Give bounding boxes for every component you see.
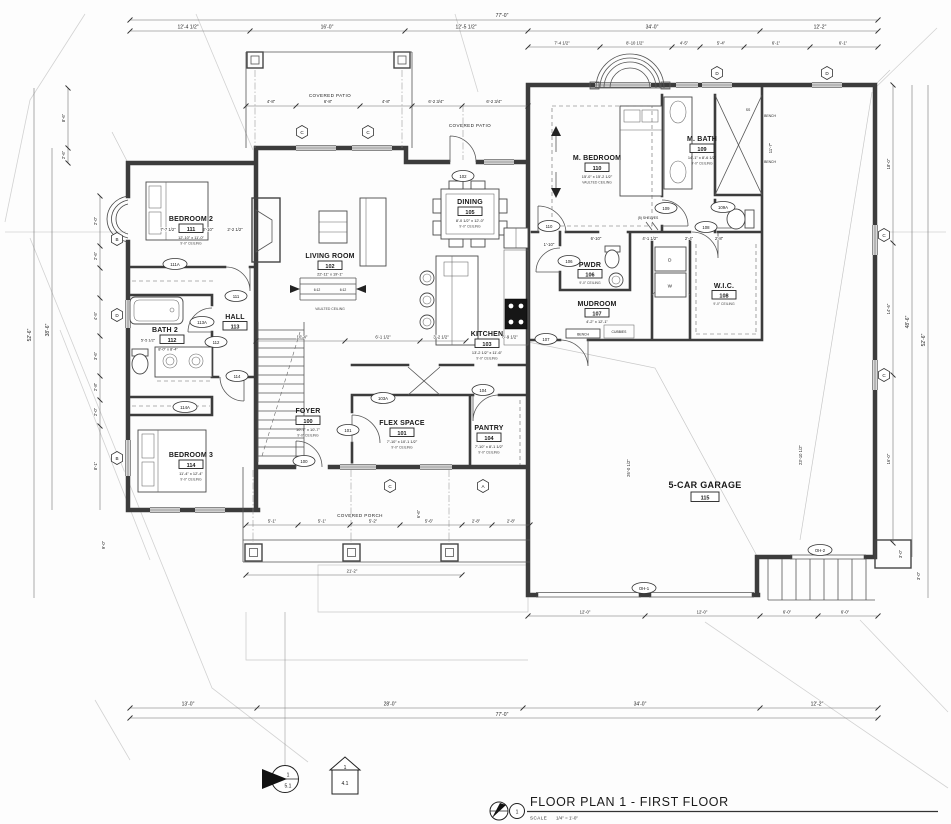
room-size: 12'-10" x 11'-0" <box>178 235 204 240</box>
room-number: 101 <box>397 431 406 437</box>
dim-top: 16'-0" <box>321 25 334 31</box>
room-ceiling: 9'-0" CEILING <box>478 451 500 455</box>
room-foyer: FOYER 100 10'-7" x 10'-7" 9'-0" CEILING <box>295 408 320 438</box>
dim-interior: 2'-4" <box>685 236 694 241</box>
dim-interior: 1'-10" <box>544 242 555 247</box>
dim-interior: 3'-2 1/2" <box>433 335 449 340</box>
dim-porch: 5'-1" <box>268 519 277 524</box>
dim-right: 14'-6" <box>886 303 891 314</box>
dim-porch: 5'-6" <box>425 519 434 524</box>
svg-text:OH-1: OH-1 <box>639 586 650 591</box>
window-tag: D <box>111 309 122 322</box>
dim-top: 7'-4 1/2" <box>554 41 570 46</box>
room-name: LIVING ROOM <box>305 253 354 260</box>
door-tag: 108 <box>695 222 717 233</box>
door-tag: 103A <box>371 393 395 404</box>
room-ceiling: VAULTED CEILING <box>582 181 612 185</box>
section-number: 1 <box>287 773 290 779</box>
dim-top: 12'-5 1/2" <box>455 25 476 31</box>
door-tag: 111 <box>225 291 247 302</box>
dim-patio: 4'-8" <box>382 99 391 104</box>
door-tag: OH-2 <box>808 545 832 556</box>
door-tag: 101 <box>337 425 359 436</box>
dim-overall-top: 77'-0" <box>496 13 509 19</box>
room-number: 100 <box>303 419 312 425</box>
svg-text:108: 108 <box>702 225 710 230</box>
room-name: DINING <box>457 199 483 206</box>
floor-plan-sheet: 77'-0" 12'-4 1/2" 16'-0" 12'-5 1/2" 34'-… <box>0 0 951 824</box>
door-tag: 112 <box>205 337 227 348</box>
room-number: 114 <box>187 463 197 469</box>
door-tag: OH-1 <box>632 583 656 594</box>
room-name: FOYER <box>295 408 320 415</box>
room-flex-space: FLEX SPACE 101 7'-10" x 10'-1 1/2" 9'-0"… <box>379 420 425 450</box>
dim-bottom: 34'-0" <box>634 702 647 708</box>
svg-text:112: 112 <box>213 340 220 345</box>
dim-right: 3'-0" <box>898 549 903 558</box>
elevation-sheet: 4.1 <box>342 781 349 787</box>
cubbies-label: CUBBIES <box>612 330 628 334</box>
dim-overall-bottom: 77'-0" <box>496 712 509 718</box>
door-tag: 100 <box>293 456 315 467</box>
dim-garage: 26'-0 1/2" <box>626 459 631 477</box>
dim-top: 4'-5" <box>680 41 689 46</box>
dim-bottom: 12'-2" <box>811 702 824 708</box>
door-tag: 114A <box>173 402 197 413</box>
room-number: 108 <box>719 293 728 299</box>
room-living: LIVING ROOM 102 22'-11" x 19'-1" 6:12 6:… <box>305 253 354 311</box>
bench-label: BENCH <box>577 333 589 337</box>
door-tag: 104 <box>472 385 494 396</box>
window-tag: A <box>477 480 488 493</box>
elevation-marker: 1 4.1 <box>330 757 360 794</box>
dim-left: 52'-6" <box>27 328 33 341</box>
room-number: 107 <box>592 311 601 317</box>
room-dining: DINING 105 8'-0 1/2" x 12'-0" 9'-0" CEIL… <box>456 199 485 229</box>
svg-text:111: 111 <box>233 294 240 299</box>
window-tag: B <box>111 233 122 246</box>
svg-text:109A: 109A <box>718 205 728 210</box>
dim-porch: 21'-2" <box>347 569 358 574</box>
roof-slope: 6:12 <box>340 288 347 292</box>
dim-porch: 2'-8" <box>507 519 516 524</box>
dim-right: 3'-0" <box>916 571 921 580</box>
svg-text:101: 101 <box>344 428 352 433</box>
dim-right: 18'-0" <box>886 158 891 169</box>
bench-label: BENCH <box>764 114 776 118</box>
room-master-bath: M. BATH 109 14'-1" x 8'-6 1/2" 9'-0" CEI… <box>687 136 717 166</box>
dim-interior: 6'-6" <box>416 509 421 518</box>
svg-text:114A: 114A <box>180 405 190 410</box>
dim-top: 12'-2" <box>814 25 827 31</box>
door-tag: 106 <box>558 256 580 267</box>
room-name: HALL <box>225 314 245 321</box>
dim-left: 2'-6" <box>61 150 66 159</box>
svg-text:106: 106 <box>565 259 573 264</box>
room-bath2: BATH 2 5'-5 1/2" 112 8'-0" x 8'-4" <box>141 327 184 352</box>
room-number: 113 <box>231 324 240 330</box>
floor-plan-drawing: 77'-0" 12'-4 1/2" 16'-0" 12'-5 1/2" 34'-… <box>0 0 951 824</box>
room-number: 104 <box>484 436 494 442</box>
dim-top: 6'-1" <box>839 41 848 46</box>
elevation-number: 1 <box>344 765 347 771</box>
dim-left: 2'-0" <box>93 216 98 225</box>
room-size: 7'-10" x 8'-1 1/2" <box>475 444 504 449</box>
svg-text:110: 110 <box>546 224 553 229</box>
dim-interior: 6'-9 1/2" <box>502 335 518 340</box>
window-tag: D <box>711 67 722 80</box>
covered-patio-label: COVERED PATIO <box>309 93 351 98</box>
dim-interior: 4'-1 1/2" <box>642 236 658 241</box>
room-number: 111 <box>187 227 196 233</box>
svg-text:104: 104 <box>479 388 487 393</box>
dim-top: 6'-1" <box>772 41 781 46</box>
dim-left: 3'-6" <box>93 351 98 360</box>
room-wic: W.I.C. 108 9'-0" CEILING <box>712 283 736 306</box>
washer-label: W <box>668 284 673 289</box>
dim-interior: 10'-4" <box>297 335 308 340</box>
door-tag: 109 <box>655 203 677 214</box>
dim-interior: 2'-10" <box>203 227 214 232</box>
room-pantry: PANTRY 104 7'-10" x 8'-1 1/2" 9'-0" CEIL… <box>474 425 503 455</box>
room-ceiling: 9'-0" CEILING <box>391 446 413 450</box>
dim-patio: 4'-8" <box>267 99 276 104</box>
room-kitchen: KITCHEN 103 13'-2 1/2" x 11'-6" 9'-0" CE… <box>471 331 504 361</box>
svg-text:111A: 111A <box>170 262 180 267</box>
svg-text:114: 114 <box>234 374 241 379</box>
room-name: FLEX SPACE <box>379 420 425 427</box>
dim-left: 2'-8" <box>93 382 98 391</box>
room-number: 110 <box>593 166 602 172</box>
room-name: PANTRY <box>474 425 503 432</box>
svg-text:B: B <box>115 237 118 242</box>
ss-label: SS <box>746 108 751 112</box>
svg-text:OH-2: OH-2 <box>815 548 826 553</box>
dim-left: 8'-1" <box>93 461 98 470</box>
dim-garage-door: 6'-0" <box>841 610 850 615</box>
room-prefix-dim: 5'-5 1/2" <box>141 338 156 343</box>
dim-top: 34'-0" <box>646 25 659 31</box>
svg-text:B: B <box>115 456 118 461</box>
dim-garage: 23'-10 1/2" <box>798 444 803 464</box>
dim-garage-door: 12'-0" <box>697 610 708 615</box>
door-tag: 113A <box>190 317 214 328</box>
room-master-bedroom: M. BEDROOM 110 15'-0" x 15'-2 1/2" VAULT… <box>573 155 621 185</box>
room-size: 7'-10" x 10'-1 1/2" <box>387 439 418 444</box>
window-tag: C <box>362 126 373 139</box>
site-lines <box>5 14 948 788</box>
room-size: 14'-1" x 8'-6 1/2" <box>688 155 717 160</box>
dim-left: 4'-5" <box>93 311 98 320</box>
room-name: KITCHEN <box>471 331 504 338</box>
dim-right: 16'-0" <box>886 453 891 464</box>
room-name: M. BEDROOM <box>573 155 621 162</box>
window-tag: C <box>878 369 889 382</box>
room-name: 5-CAR GARAGE <box>668 480 741 490</box>
room-size: 8'-0 1/2" x 12'-0" <box>456 218 485 223</box>
room-ceiling: 9'-0" CEILING <box>180 242 202 246</box>
door-tag: 107 <box>535 334 557 345</box>
svg-text:100: 100 <box>300 459 308 464</box>
room-ceiling: VAULTED CEILING <box>315 307 345 311</box>
dim-top: 5'-4" <box>717 41 726 46</box>
room-number: 109 <box>697 147 706 153</box>
dim-top: 8'-10 1/2" <box>626 41 644 46</box>
dim-right: 11'-7" <box>768 142 773 153</box>
section-sheet: 5.1 <box>285 784 292 790</box>
sheet-title: FLOOR PLAN 1 - FIRST FLOOR <box>530 795 729 809</box>
room-hall: HALL 113 <box>223 314 247 330</box>
shelves-label: (5) SHELVES <box>638 216 659 220</box>
title-block: 1 FLOOR PLAN 1 - FIRST FLOOR SCALE 1/4" … <box>490 795 938 821</box>
room-size: 15'-0" x 15'-2 1/2" <box>582 174 613 179</box>
dim-patio: 6'-2 3/4" <box>486 99 502 104</box>
dim-interior: 2'-2 1/2" <box>227 227 243 232</box>
room-size: 10'-7" x 10'-7" <box>296 427 321 432</box>
room-size: 22'-11" x 19'-1" <box>317 272 343 277</box>
covered-patio-label: COVERED PATIO <box>449 123 491 128</box>
dim-bottom: 28'-0" <box>384 702 397 708</box>
room-mudroom: MUDROOM 107 4'-2" x 12'-1" <box>577 301 616 324</box>
window-tag: B <box>111 452 122 465</box>
window-tag: D <box>821 67 832 80</box>
dim-left: 2'-6" <box>93 251 98 260</box>
svg-text:109: 109 <box>662 206 670 211</box>
window-tag: C <box>878 229 889 242</box>
dim-left: 2'-0" <box>93 407 98 416</box>
scale-value: 1/4" = 1'-0" <box>556 816 578 821</box>
room-ceiling: 9'-0" CEILING <box>713 302 735 306</box>
room-number: 105 <box>465 210 474 216</box>
dim-left: 9'-0" <box>101 540 106 549</box>
room-ceiling: 9'-0" CEILING <box>691 162 713 166</box>
svg-text:113A: 113A <box>197 320 207 325</box>
dim-interior: 6'-1 1/2" <box>375 335 391 340</box>
room-size: 11'-4" x 12'-4" <box>179 471 203 476</box>
dim-interior: 6'-10" <box>591 236 602 241</box>
covered-porch-label: COVERED PORCH <box>337 513 383 518</box>
room-number: 103 <box>482 342 491 348</box>
room-number: 106 <box>585 272 594 278</box>
dim-bottom: 13'-0" <box>182 702 195 708</box>
dim-interior: 7'-7 1/2" <box>160 227 176 232</box>
bench-label: BENCH <box>764 160 776 164</box>
dim-interior: 2'-8" <box>715 236 724 241</box>
door-tag: 109A <box>711 202 735 213</box>
fixtures <box>130 52 756 562</box>
room-name: M. BATH <box>687 136 717 143</box>
room-ceiling: 9'-0" CEILING <box>476 357 498 361</box>
room-size: 8'-0" x 8'-4" <box>158 347 178 352</box>
room-ceiling: 9'-0" CEILING <box>180 478 202 482</box>
dim-porch: 5'-2" <box>369 519 378 524</box>
dim-garage-door: 6'-0" <box>783 610 792 615</box>
room-garage: 5-CAR GARAGE 115 <box>668 480 741 502</box>
room-ceiling: 9'-0" CEILING <box>579 281 601 285</box>
room-name: PWDR <box>579 262 601 269</box>
room-size: 13'-2 1/2" x 11'-6" <box>472 350 503 355</box>
window-tag: C <box>296 126 307 139</box>
door-tag: 111A <box>163 259 187 270</box>
reference-markers: 1 5.1 1 4.1 <box>262 612 360 794</box>
plan-number: 1 <box>516 810 519 816</box>
room-name: MUDROOM <box>577 301 616 308</box>
svg-text:102: 102 <box>459 174 467 179</box>
dim-left: 38'-6" <box>45 323 51 336</box>
dim-garage-door: 12'-0" <box>580 610 591 615</box>
scale-label: SCALE <box>530 816 547 821</box>
room-name: BEDROOM 3 <box>169 452 213 459</box>
room-ceiling: 9'-0" CEILING <box>297 434 319 438</box>
window-tag: C <box>384 480 395 493</box>
dim-patio: 6'-2 3/4" <box>428 99 444 104</box>
room-pwdr: PWDR 106 9'-0" CEILING <box>578 262 602 285</box>
roof-slope: 6:12 <box>314 288 321 292</box>
svg-text:103A: 103A <box>378 396 388 401</box>
dryer-label: D <box>668 258 672 263</box>
dim-left: 8'-6" <box>61 113 66 122</box>
dim-top: 12'-4 1/2" <box>177 25 198 31</box>
room-number: 112 <box>168 338 177 344</box>
room-name: BEDROOM 2 <box>169 216 213 223</box>
room-ceiling: 9'-0" CEILING <box>459 225 481 229</box>
dim-right: 52'-6" <box>921 333 927 346</box>
room-number: 115 <box>701 496 710 502</box>
dim-porch: 2'-8" <box>472 519 481 524</box>
door-tag: 102 <box>452 171 474 182</box>
door-tag: 110 <box>538 221 560 232</box>
room-name: BATH 2 <box>152 327 178 334</box>
dim-patio: 6'-8" <box>324 99 333 104</box>
dim-porch: 5'-1" <box>318 519 327 524</box>
door-tag: 114 <box>226 371 248 382</box>
room-name: W.I.C. <box>714 283 734 290</box>
dim-right: 48'-6" <box>905 315 911 328</box>
svg-text:107: 107 <box>542 337 550 342</box>
room-size: 4'-2" x 12'-1" <box>586 319 608 324</box>
room-number: 102 <box>325 264 334 270</box>
